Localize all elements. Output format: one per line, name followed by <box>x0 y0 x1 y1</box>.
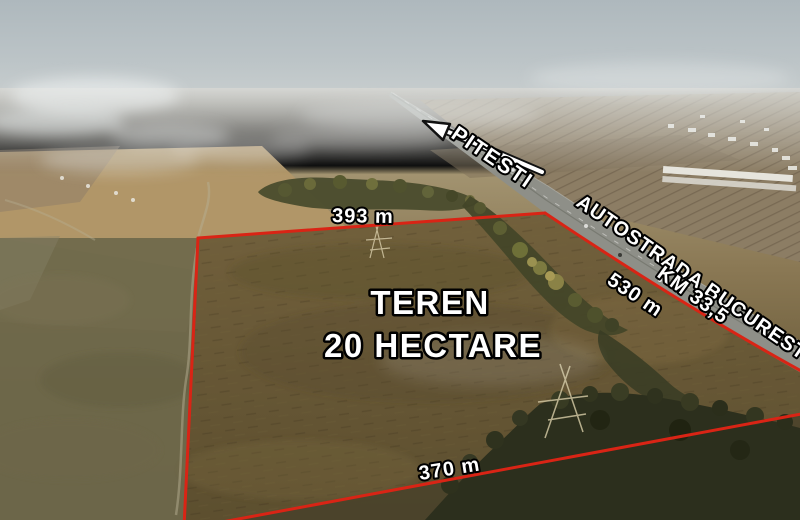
aerial-photo: PITESTI AUTOSTRADA BUCURESTI - PITESTI K… <box>0 0 800 520</box>
plot-title-line2: 20 HECTARE <box>324 327 542 364</box>
left-field <box>0 200 200 520</box>
top-393m-label: 393 m <box>332 205 394 228</box>
aerial-photo-scene: PITESTI AUTOSTRADA BUCURESTI - PITESTI K… <box>0 0 800 520</box>
plot-title-line1: TEREN <box>370 284 489 321</box>
